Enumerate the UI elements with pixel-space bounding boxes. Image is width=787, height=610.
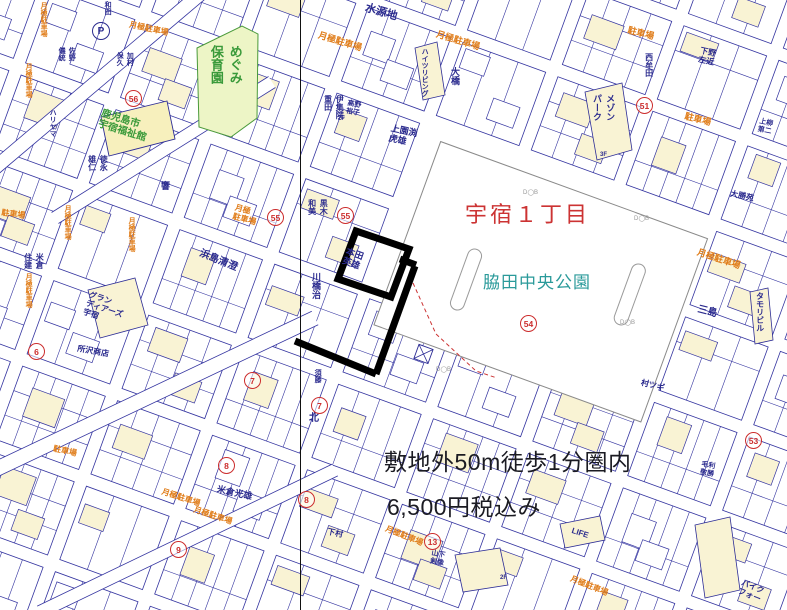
map-parcel xyxy=(436,42,545,145)
map-parcel xyxy=(562,0,671,95)
residential-map: P 月極駐車場月極駐車場月極駐車場月極駐車場月極駐車場駐車場駐車場駐車場月極駐車… xyxy=(0,0,787,610)
map-graphics xyxy=(0,0,787,610)
heights2-building xyxy=(455,548,508,592)
nursery-building xyxy=(197,26,258,137)
map-parcel xyxy=(247,0,356,77)
parking-symbol: P xyxy=(92,22,110,40)
